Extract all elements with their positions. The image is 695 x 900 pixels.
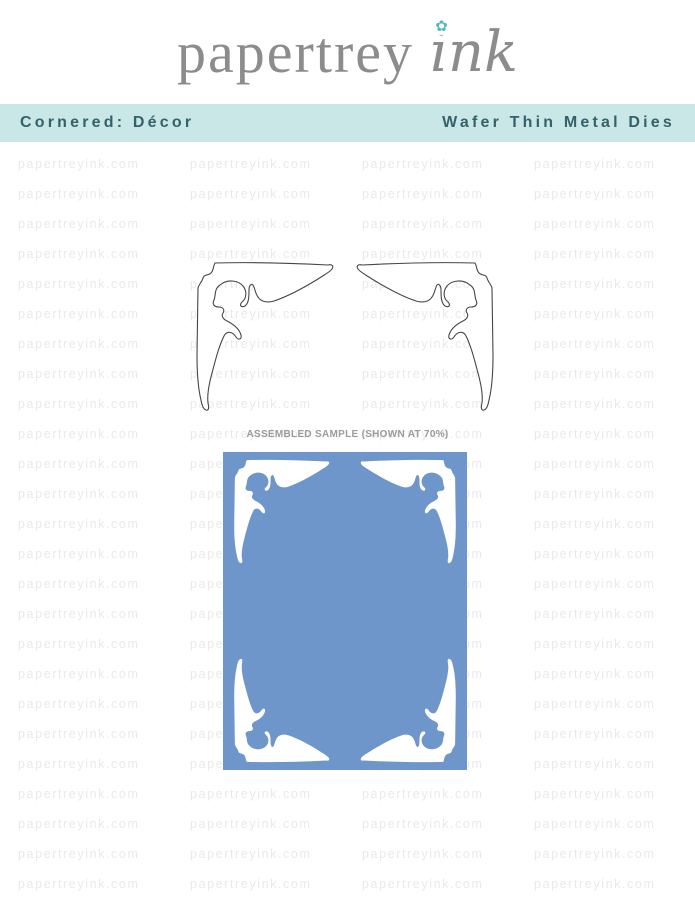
watermark-text: papertreyink.com	[534, 689, 695, 719]
watermark-text: papertreyink.com	[534, 809, 695, 839]
watermark-text: papertreyink.com	[18, 629, 190, 659]
watermark-text: papertreyink.com	[534, 269, 695, 299]
watermark-row: papertreyink.compapertreyink.compapertre…	[18, 209, 695, 239]
watermark-row: papertreyink.compapertreyink.compapertre…	[18, 869, 695, 899]
watermark-text: papertreyink.com	[362, 809, 534, 839]
watermark-text: papertreyink.com	[534, 449, 695, 479]
right-corner-die	[357, 263, 493, 411]
watermark-text: papertreyink.com	[18, 209, 190, 239]
flower-icon: ✿	[433, 18, 450, 35]
watermark-text: papertreyink.com	[534, 719, 695, 749]
watermark-text: papertreyink.com	[534, 359, 695, 389]
watermark-text: papertreyink.com	[534, 599, 695, 629]
title-banner: Cornered: Décor Wafer Thin Metal Dies	[0, 104, 695, 142]
watermark-text: papertreyink.com	[190, 179, 362, 209]
watermark-text: papertreyink.com	[18, 149, 190, 179]
watermark-text: papertreyink.com	[534, 479, 695, 509]
card-flourishes	[223, 452, 467, 770]
assembled-sample-label: ASSEMBLED SAMPLE (SHOWN AT 70%)	[0, 429, 695, 440]
logo-word-ink-wrap: ink ✿	[430, 25, 518, 81]
watermark-text: papertreyink.com	[534, 389, 695, 419]
watermark-text: papertreyink.com	[18, 359, 190, 389]
card-corner-bottom-right	[361, 659, 456, 762]
watermark-text: papertreyink.com	[534, 299, 695, 329]
product-name: Cornered: Décor	[20, 114, 194, 132]
watermark-text: papertreyink.com	[18, 689, 190, 719]
watermark-text: papertreyink.com	[18, 599, 190, 629]
watermark-text: papertreyink.com	[190, 839, 362, 869]
watermark-row: papertreyink.compapertreyink.compapertre…	[18, 839, 695, 869]
watermark-text: papertreyink.com	[18, 749, 190, 779]
watermark-text: papertreyink.com	[18, 449, 190, 479]
card-corner-top-left	[234, 460, 329, 563]
watermark-text: papertreyink.com	[190, 809, 362, 839]
watermark-text: papertreyink.com	[534, 179, 695, 209]
watermark-text: papertreyink.com	[534, 629, 695, 659]
watermark-text: papertreyink.com	[18, 869, 190, 899]
watermark-text: papertreyink.com	[362, 839, 534, 869]
card-corner-bottom-left	[234, 659, 329, 762]
watermark-row: papertreyink.compapertreyink.compapertre…	[18, 149, 695, 179]
watermark-text: papertreyink.com	[190, 209, 362, 239]
left-corner-die	[197, 263, 333, 411]
watermark-text: papertreyink.com	[18, 539, 190, 569]
watermark-text: papertreyink.com	[18, 179, 190, 209]
watermark-text: papertreyink.com	[18, 809, 190, 839]
watermark-text: papertreyink.com	[18, 299, 190, 329]
watermark-text: papertreyink.com	[362, 869, 534, 899]
watermark-text: papertreyink.com	[362, 209, 534, 239]
watermark-text: papertreyink.com	[18, 659, 190, 689]
watermark-text: papertreyink.com	[362, 149, 534, 179]
watermark-text: papertreyink.com	[534, 659, 695, 689]
watermark-text: papertreyink.com	[190, 149, 362, 179]
watermark-text: papertreyink.com	[18, 269, 190, 299]
watermark-row: papertreyink.compapertreyink.compapertre…	[18, 179, 695, 209]
watermark-text: papertreyink.com	[18, 839, 190, 869]
watermark-text: papertreyink.com	[18, 719, 190, 749]
watermark-text: papertreyink.com	[190, 869, 362, 899]
watermark-text: papertreyink.com	[534, 509, 695, 539]
watermark-text: papertreyink.com	[534, 869, 695, 899]
watermark-text: papertreyink.com	[18, 569, 190, 599]
watermark-text: papertreyink.com	[18, 389, 190, 419]
watermark-row: papertreyink.compapertreyink.compapertre…	[18, 779, 695, 809]
watermark-text: papertreyink.com	[18, 329, 190, 359]
watermark-row: papertreyink.compapertreyink.compapertre…	[18, 809, 695, 839]
assembled-sample-card	[223, 452, 467, 770]
watermark-text: papertreyink.com	[190, 779, 362, 809]
watermark-text: papertreyink.com	[534, 839, 695, 869]
watermark-text: papertreyink.com	[18, 779, 190, 809]
product-category: Wafer Thin Metal Dies	[442, 114, 675, 132]
watermark-text: papertreyink.com	[362, 179, 534, 209]
watermark-text: papertreyink.com	[534, 749, 695, 779]
watermark-text: papertreyink.com	[18, 509, 190, 539]
card-corner-top-right	[361, 460, 456, 563]
watermark-text: papertreyink.com	[534, 329, 695, 359]
watermark-text: papertreyink.com	[18, 479, 190, 509]
watermark-text: papertreyink.com	[534, 569, 695, 599]
watermark-text: papertreyink.com	[362, 779, 534, 809]
watermark-text: papertreyink.com	[534, 779, 695, 809]
watermark-text: papertreyink.com	[534, 209, 695, 239]
watermark-text: papertreyink.com	[534, 149, 695, 179]
product-image: papertreyink.compapertreyink.compapertre…	[0, 0, 695, 900]
watermark-text: papertreyink.com	[534, 239, 695, 269]
watermark-text: papertreyink.com	[534, 539, 695, 569]
die-outlines	[189, 260, 501, 412]
watermark-text: papertreyink.com	[18, 239, 190, 269]
logo-word-papertrey: papertrey	[177, 24, 414, 82]
papertrey-ink-logo: papertrey ink ✿	[0, 8, 695, 98]
